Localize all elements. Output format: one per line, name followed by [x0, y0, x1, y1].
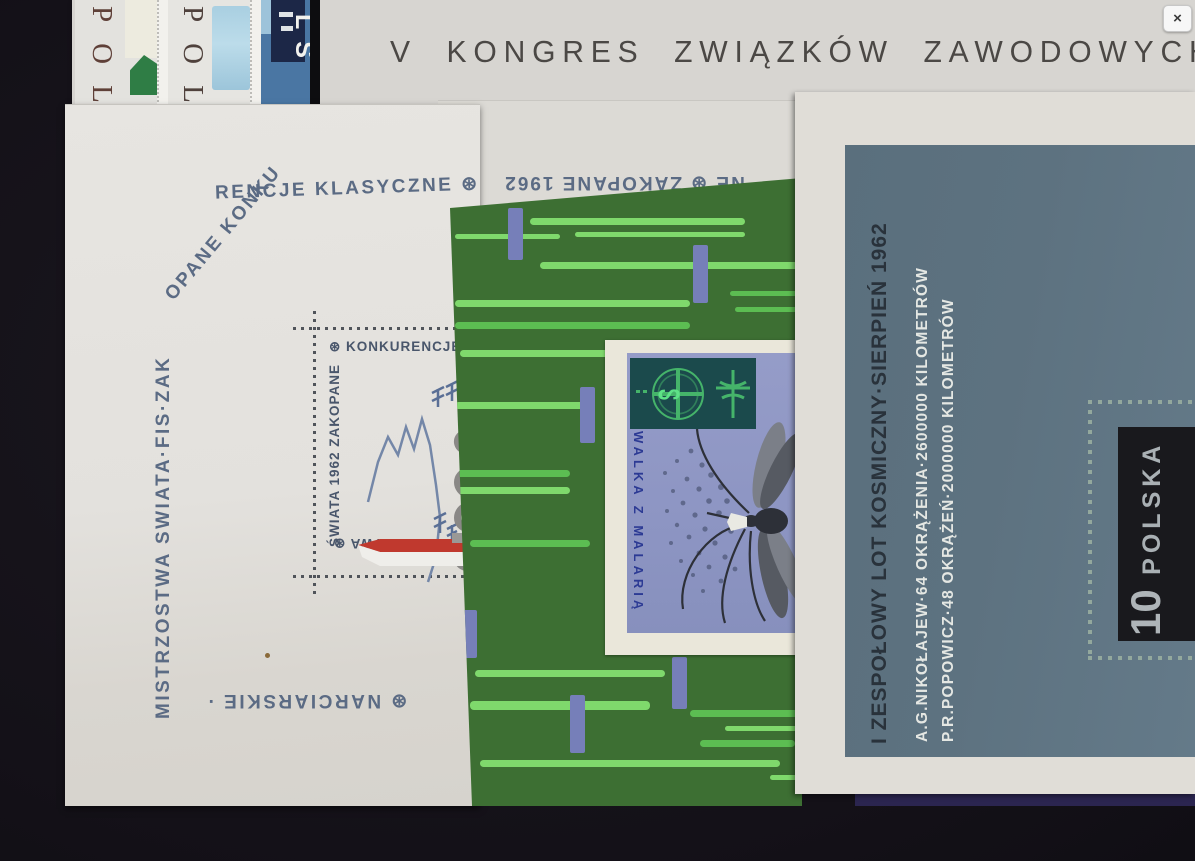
space-sheet-popowicz-line: P.R.POPOWICZ·48 OKRĄŻEŃ·2000000 KILOMETR… [940, 298, 958, 742]
malaria-stamp-text: WALKA Z MALARIĄ [631, 431, 646, 613]
stamp1-green-mountain [130, 55, 157, 95]
space-stamp-inscription: 10 POLSKA [1122, 441, 1170, 636]
stamp-country: POLSKA [1138, 441, 1166, 575]
stamp-value: 10 [1122, 589, 1169, 636]
paper-speck [265, 653, 270, 658]
zakopane-sheet: MISTRZOSTWA SWIATA·FIS·ZAK OPANE KONKU R… [65, 104, 480, 806]
perforation-line [313, 311, 316, 599]
stamp1-cream-block [125, 0, 157, 58]
stamp2-sky-block [212, 6, 250, 90]
perforation-line [1088, 400, 1092, 660]
perforation-line [1088, 656, 1195, 660]
space-sheet-title: I ZESPOŁOWY LOT KOSMICZNY·SIERPIEŃ 1962 [868, 222, 892, 744]
stamp3-black-edge [310, 0, 320, 106]
stamp-polska-dark: LS [261, 0, 320, 106]
perforation-line [1088, 400, 1195, 404]
stamp-pol-green: POL [75, 0, 157, 106]
photo-stamp-collection: V KONGRES ZWIĄZKÓW ZAWODOWYCH POL POL LS… [0, 0, 1195, 861]
zakopane-border-top: RENCJE KLASYCZNE ⊛ [215, 172, 480, 204]
malaria-sheet: ᔕ WALKA Z MALARIĄ [450, 178, 802, 806]
malaria-stamp: ᔕ WALKA Z MALARIĄ [605, 340, 802, 655]
zakopane-inner-top: ⊛ KONKURENCJE K [329, 339, 477, 355]
perforation-line [293, 327, 480, 330]
malaria-stamp-field: ᔕ WALKA Z MALARIĄ [627, 353, 802, 633]
dash-decoration [636, 390, 650, 393]
zakopane-border-bottom: ⊛ NARCIARSKIE · [205, 689, 407, 712]
snake-icon: ᔕ [658, 380, 678, 405]
stamp-strip: POL POL LS [75, 0, 320, 106]
mosquito-graphic [647, 413, 802, 633]
close-icon: × [1173, 10, 1182, 27]
space-sheet-nikolajew-line: A.G.NIKOŁAJEW·64 OKRĄŻENIA·2600000 KILOM… [914, 267, 932, 742]
kongres-sheet-title: V KONGRES ZWIĄZKÓW ZAWODOWYCH [390, 34, 1166, 70]
zakopane-border-left: MISTRZOSTWA SWIATA·FIS·ZAK [153, 356, 175, 719]
close-button[interactable]: × [1163, 5, 1192, 32]
stamp-pol-blue: POL [168, 0, 250, 106]
